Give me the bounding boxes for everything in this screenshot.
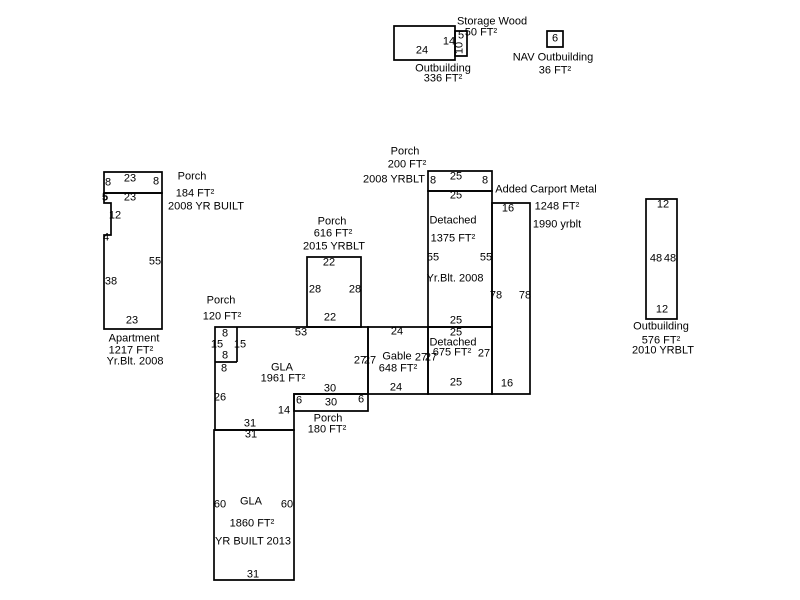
added-carport-dimension-label: 16 [501, 379, 513, 390]
gla-upper-dimension-label: 26 [214, 393, 226, 404]
gla-upper-caption: 1961 FT² [261, 374, 306, 385]
apartment-caption: Apartment [109, 334, 160, 345]
apartment-dimension-label: 55 [149, 257, 161, 268]
nav-outbuilding-caption: 36 FT² [539, 66, 571, 77]
gable-dimension-label: 24 [391, 327, 403, 338]
porch-616-dimension-label: 28 [309, 285, 321, 296]
porch-200-dimension-label: 8 [430, 176, 436, 187]
apartment-dimension-label: 4 [103, 233, 109, 244]
porch-200-dimension-label: 8 [482, 176, 488, 187]
apartment-dimension-label: 23 [124, 193, 136, 204]
porch-120-caption: Porch [207, 296, 236, 307]
porch-120-dimension-label: 8 [221, 364, 227, 375]
apartment-porch-dimension-label: 23 [124, 174, 136, 185]
outbuilding-336-caption: 336 FT² [424, 74, 463, 85]
sketch-outlines [0, 0, 800, 600]
porch-200-caption: 200 FT² [388, 160, 427, 171]
added-carport-caption: 1990 yrblt [533, 220, 581, 231]
apartment-porch-caption: Porch [178, 172, 207, 183]
apartment-porch-dimension-label: 8 [105, 178, 111, 189]
gla-upper-dimension-label: 53 [295, 328, 307, 339]
gla-upper-dimension-label: 14 [278, 406, 290, 417]
detached-1375-caption: Detached [429, 216, 476, 227]
gla-lower-dimension-label: 60 [281, 500, 293, 511]
detached-1375-caption: Yr.Blt. 2008 [427, 274, 484, 285]
porch-616-caption: 616 FT² [314, 229, 353, 240]
outbuilding-336-dimension-label: 24 [416, 46, 428, 57]
outbuilding-576-dimension-label: 12 [657, 200, 669, 211]
porch-200-caption: 2008 YRBLT [363, 175, 425, 186]
detached-1375-dimension-label: 25 [450, 191, 462, 202]
detached-675-dimension-label: 25 [450, 378, 462, 389]
outbuilding-576-dimension-label: 48 [650, 254, 662, 265]
gla-lower-dimension-label: 31 [247, 570, 259, 581]
apartment-caption: Yr.Blt. 2008 [107, 357, 164, 368]
added-carport-caption: Added Carport Metal [495, 185, 597, 196]
apartment-dimension-label: 12 [109, 211, 121, 222]
gla-lower-caption: GLA [240, 497, 262, 508]
porch-616-dimension-label: 22 [323, 258, 335, 269]
gable-caption: 648 FT² [379, 364, 418, 375]
porch-616-caption: 2015 YRBLT [303, 242, 365, 253]
property-sketch: 2414Outbuilding336 FT²510Storage Wood50 … [0, 0, 800, 600]
gla-lower-caption: YR BUILT 2013 [215, 537, 291, 548]
porch-120-dimension-label: 8 [222, 351, 228, 362]
detached-1375-dimension-label: 25 [450, 316, 462, 327]
nav-outbuilding-caption: NAV Outbuilding [513, 53, 594, 64]
gla-upper-dimension-label: 30 [324, 384, 336, 395]
outbuilding-576-dimension-label: 48 [664, 254, 676, 265]
gable-dimension-label: 27 [364, 356, 376, 367]
nav-outbuilding-dimension-label: 6 [552, 34, 558, 45]
apartment-porch-caption: 184 FT² [176, 189, 215, 200]
apartment-dimension-label: 23 [126, 316, 138, 327]
porch-120-caption: 120 FT² [203, 312, 242, 323]
outbuilding-576-caption: 2010 YRBLT [632, 346, 694, 357]
detached-1375-dimension-label: 55 [480, 253, 492, 264]
porch-180-caption: 180 FT² [308, 425, 347, 436]
apartment-porch-caption: 2008 YR BUILT [168, 202, 244, 213]
porch-120-dimension-label: 15 [234, 340, 246, 351]
added-carport-dimension-label: 78 [490, 291, 502, 302]
gla-lower-dimension-label: 60 [214, 500, 226, 511]
storage-wood-dimension-label: 5 [458, 31, 464, 42]
outbuilding-576-caption: Outbuilding [633, 322, 689, 333]
storage-wood-caption: 50 FT² [465, 28, 497, 39]
added-carport-caption: 1248 FT² [535, 202, 580, 213]
detached-1375-caption: 1375 FT² [431, 234, 476, 245]
gla-lower-dimension-label: 31 [245, 430, 257, 441]
outbuilding-576-dimension-label: 12 [656, 305, 668, 316]
porch-200-dimension-label: 25 [450, 172, 462, 183]
added-carport-dimension-label: 78 [519, 291, 531, 302]
gable-caption: Gable [382, 352, 411, 363]
porch-616-dimension-label: 28 [349, 285, 361, 296]
detached-675-dimension-label: 27 [478, 349, 490, 360]
storage-wood-dimension-label: 10 [455, 42, 466, 54]
porch-180-dimension-label: 30 [325, 398, 337, 409]
added-carport-dimension-label: 16 [502, 204, 514, 215]
porch-616-dimension-label: 22 [324, 313, 336, 324]
porch-180-dimension-label: 6 [296, 396, 302, 407]
gable-dimension-label: 24 [390, 383, 402, 394]
detached-1375-dimension-label: 55 [427, 253, 439, 264]
porch-180-dimension-label: 6 [358, 395, 364, 406]
gla-lower-caption: 1860 FT² [230, 519, 275, 530]
porch-200-caption: Porch [391, 147, 420, 158]
apartment-dimension-label: 5 [102, 193, 108, 204]
detached-675-caption: 675 FT² [433, 348, 472, 359]
porch-616-caption: Porch [318, 217, 347, 228]
apartment-dimension-label: 38 [105, 277, 117, 288]
apartment-porch-dimension-label: 8 [153, 177, 159, 188]
